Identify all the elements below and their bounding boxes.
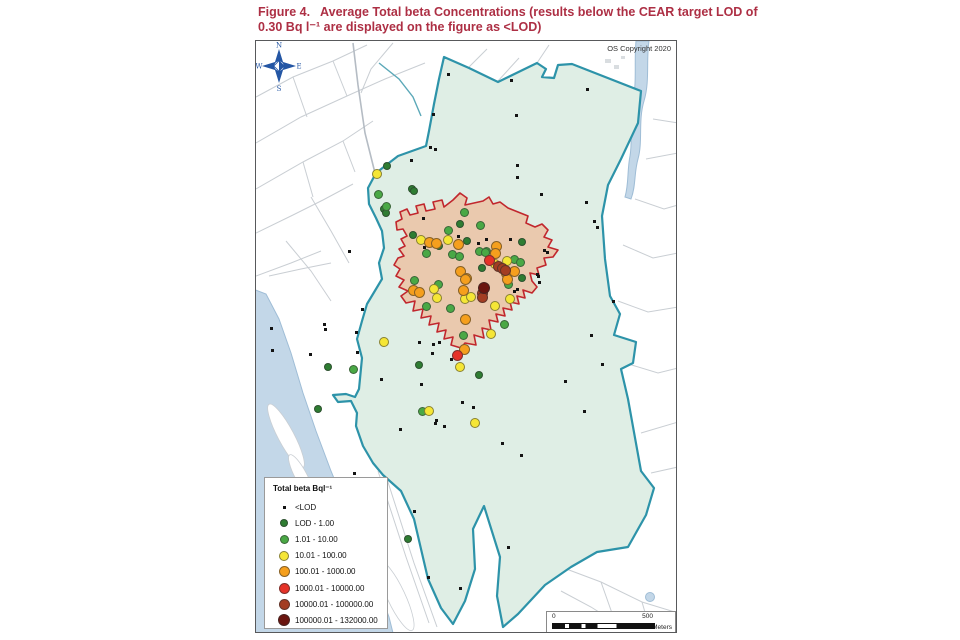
compass-n-label: N	[276, 42, 282, 50]
data-point-lod	[434, 422, 437, 425]
data-point-lod	[380, 378, 383, 381]
data-point-v10_100	[486, 329, 496, 339]
legend-label-v1_10: 1.01 - 10.00	[295, 535, 338, 544]
figure-title: Figure 4. Average Total beta Concentrati…	[258, 5, 758, 36]
legend-item-v10_100: 10.01 - 100.00	[273, 548, 387, 564]
data-point-lod	[485, 238, 488, 241]
data-point-v10_100	[470, 418, 480, 428]
legend-item-lod_1: LOD - 1.00	[273, 515, 387, 531]
data-point-lod_1	[456, 220, 464, 228]
data-point-v10_100	[490, 301, 500, 311]
scale-units-label: Meters	[652, 624, 672, 631]
data-point-v1_10	[516, 258, 525, 267]
os-copyright-label: OS Copyright 2020	[607, 44, 671, 53]
data-point-v10k_100k	[500, 265, 511, 276]
compass-w-label: W	[256, 63, 263, 71]
data-point-lod	[472, 406, 475, 409]
legend-item-v10k_100k: 10000.01 - 100000.00	[273, 596, 387, 612]
data-point-v100_1k	[460, 274, 471, 285]
data-point-v10_100	[372, 169, 382, 179]
data-point-lod_1	[518, 274, 526, 282]
data-point-lod	[271, 349, 274, 352]
data-point-lod_1	[324, 363, 332, 371]
data-point-v10_100	[443, 235, 453, 245]
compass-s-label: S	[277, 85, 282, 93]
data-point-lod	[270, 327, 273, 330]
legend-label-lod: <LOD	[295, 503, 316, 512]
data-point-lod	[546, 251, 549, 254]
data-point-lod	[583, 410, 586, 413]
data-point-lod	[459, 587, 462, 590]
data-point-lod	[461, 401, 464, 404]
data-point-v1_10	[422, 302, 431, 311]
data-point-lod	[432, 343, 435, 346]
legend-swatch-v1k_10k	[279, 583, 290, 594]
data-point-lod	[422, 217, 425, 220]
legend-swatch-v10_100	[279, 551, 289, 561]
data-point-lod	[438, 341, 441, 344]
data-point-lod	[355, 331, 358, 334]
legend-item-v100_1k: 100.01 - 1000.00	[273, 564, 387, 580]
scale-start-label: 0	[552, 613, 556, 620]
legend-label-v10_100: 10.01 - 100.00	[295, 551, 347, 560]
data-point-lod	[477, 242, 480, 245]
data-point-lod	[510, 79, 513, 82]
data-point-v1_10	[444, 226, 453, 235]
data-point-lod	[447, 73, 450, 76]
data-point-lod	[429, 146, 432, 149]
data-point-lod	[361, 308, 364, 311]
data-point-v100_1k	[458, 285, 469, 296]
data-point-lod	[399, 428, 402, 431]
data-point-lod	[348, 250, 351, 253]
data-point-lod	[323, 323, 326, 326]
data-point-lod	[410, 159, 413, 162]
data-point-lod	[427, 576, 430, 579]
data-point-v100_1k	[460, 314, 471, 325]
data-point-v1_10	[476, 221, 485, 230]
data-point-lod	[516, 176, 519, 179]
legend-item-v100k_132k: 100000.01 - 132000.00	[273, 612, 387, 628]
data-point-v10_100	[432, 293, 442, 303]
data-point-v1_10	[422, 249, 431, 258]
data-point-lod_1	[475, 371, 483, 379]
legend-swatch-lod	[283, 506, 286, 509]
data-point-lod	[585, 201, 588, 204]
data-point-v100_1k	[431, 238, 442, 249]
north-arrow-icon: N E S W	[256, 41, 302, 93]
data-point-lod	[516, 164, 519, 167]
data-point-lod_1	[463, 237, 471, 245]
data-point-lod	[413, 510, 416, 513]
legend-label-v1k_10k: 1000.01 - 10000.00	[295, 584, 364, 593]
legend-item-v1_10: 1.01 - 10.00	[273, 531, 387, 547]
data-point-v10_100	[505, 294, 515, 304]
data-point-v1_10	[459, 331, 468, 340]
data-point-lod	[356, 351, 359, 354]
data-point-v10_100	[424, 406, 434, 416]
legend-label-lod_1: LOD - 1.00	[295, 519, 334, 528]
legend-label-v10k_100k: 10000.01 - 100000.00	[295, 600, 373, 609]
scale-bar: 0 500 Meters	[546, 611, 676, 633]
data-point-v1_10	[455, 252, 464, 261]
data-point-lod	[507, 546, 510, 549]
data-point-lod	[520, 454, 523, 457]
compass-e-label: E	[296, 63, 301, 71]
data-point-v10_100	[455, 362, 465, 372]
data-point-lod	[538, 281, 541, 284]
data-point-lod	[420, 383, 423, 386]
figure-page: Figure 4. Average Total beta Concentrati…	[0, 0, 960, 640]
data-point-v1_10	[500, 320, 509, 329]
figure-title-line2: 0.30 Bq l⁻¹ are displayed on the figure …	[258, 20, 758, 35]
data-point-v1_10	[349, 365, 358, 374]
legend-label-v100_1k: 100.01 - 1000.00	[295, 567, 356, 576]
data-point-v1k_10k	[452, 350, 463, 361]
legend-swatch-v1_10	[280, 535, 289, 544]
data-point-lod	[590, 334, 593, 337]
data-point-lod	[612, 300, 615, 303]
data-point-lod	[540, 193, 543, 196]
data-point-lod_1	[383, 162, 391, 170]
data-point-lod	[515, 114, 518, 117]
data-point-lod	[353, 472, 356, 475]
legend-label-v100k_132k: 100000.01 - 132000.00	[295, 616, 378, 625]
legend-item-v1k_10k: 1000.01 - 10000.00	[273, 580, 387, 596]
data-point-lod	[443, 425, 446, 428]
data-point-v1_10	[382, 202, 391, 211]
data-point-lod	[431, 352, 434, 355]
map-canvas: OS Copyright 2020 N E S W Total beta Bql…	[255, 40, 677, 633]
data-point-lod	[501, 442, 504, 445]
scale-bar-graphic	[552, 623, 655, 629]
data-point-lod	[586, 88, 589, 91]
legend-swatch-v10k_100k	[279, 599, 290, 610]
data-point-lod	[309, 353, 312, 356]
data-point-lod	[434, 148, 437, 151]
legend-swatch-v100k_132k	[278, 614, 290, 626]
data-point-lod	[513, 290, 516, 293]
data-point-lod	[601, 363, 604, 366]
data-point-v100k_132k	[478, 282, 490, 294]
data-point-lod	[324, 328, 327, 331]
data-point-v1_10	[446, 304, 455, 313]
legend-swatch-lod_1	[280, 519, 288, 527]
data-point-lod	[432, 113, 435, 116]
legend-title: Total beta Bql⁻¹	[273, 484, 387, 493]
data-point-v1_10	[410, 276, 419, 285]
data-point-v1_10	[460, 208, 469, 217]
data-point-v100_1k	[453, 239, 464, 250]
legend-swatch-v100_1k	[279, 566, 290, 577]
data-point-lod	[593, 220, 596, 223]
map-legend: Total beta Bql⁻¹ <LODLOD - 1.001.01 - 10…	[264, 477, 388, 629]
data-point-lod_1	[404, 535, 412, 543]
scale-end-label: 500	[642, 613, 653, 620]
data-point-lod	[537, 275, 540, 278]
data-point-v10_100	[379, 337, 389, 347]
data-point-v1_10	[374, 190, 383, 199]
data-point-lod_1	[478, 264, 486, 272]
data-point-lod	[418, 341, 421, 344]
data-point-lod	[457, 235, 460, 238]
data-point-lod_1	[410, 187, 418, 195]
data-point-lod_1	[314, 405, 322, 413]
data-point-v100_1k	[414, 287, 425, 298]
data-point-lod_1	[415, 361, 423, 369]
data-point-lod	[596, 226, 599, 229]
legend-items: <LODLOD - 1.001.01 - 10.0010.01 - 100.00…	[273, 499, 387, 629]
data-point-lod	[509, 238, 512, 241]
data-point-lod_1	[518, 238, 526, 246]
data-point-lod	[516, 288, 519, 291]
figure-title-line1: Figure 4. Average Total beta Concentrati…	[258, 5, 758, 20]
legend-item-lod: <LOD	[273, 499, 387, 515]
data-point-lod	[564, 380, 567, 383]
